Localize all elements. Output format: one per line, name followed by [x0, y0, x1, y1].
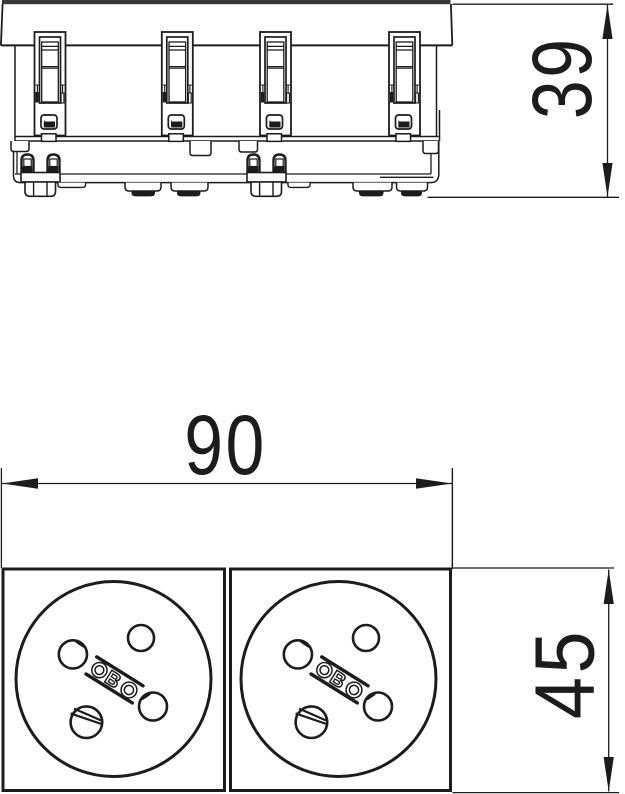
svg-text:90: 90 — [184, 399, 267, 493]
svg-text:45: 45 — [518, 628, 612, 719]
svg-text:39: 39 — [516, 37, 610, 120]
